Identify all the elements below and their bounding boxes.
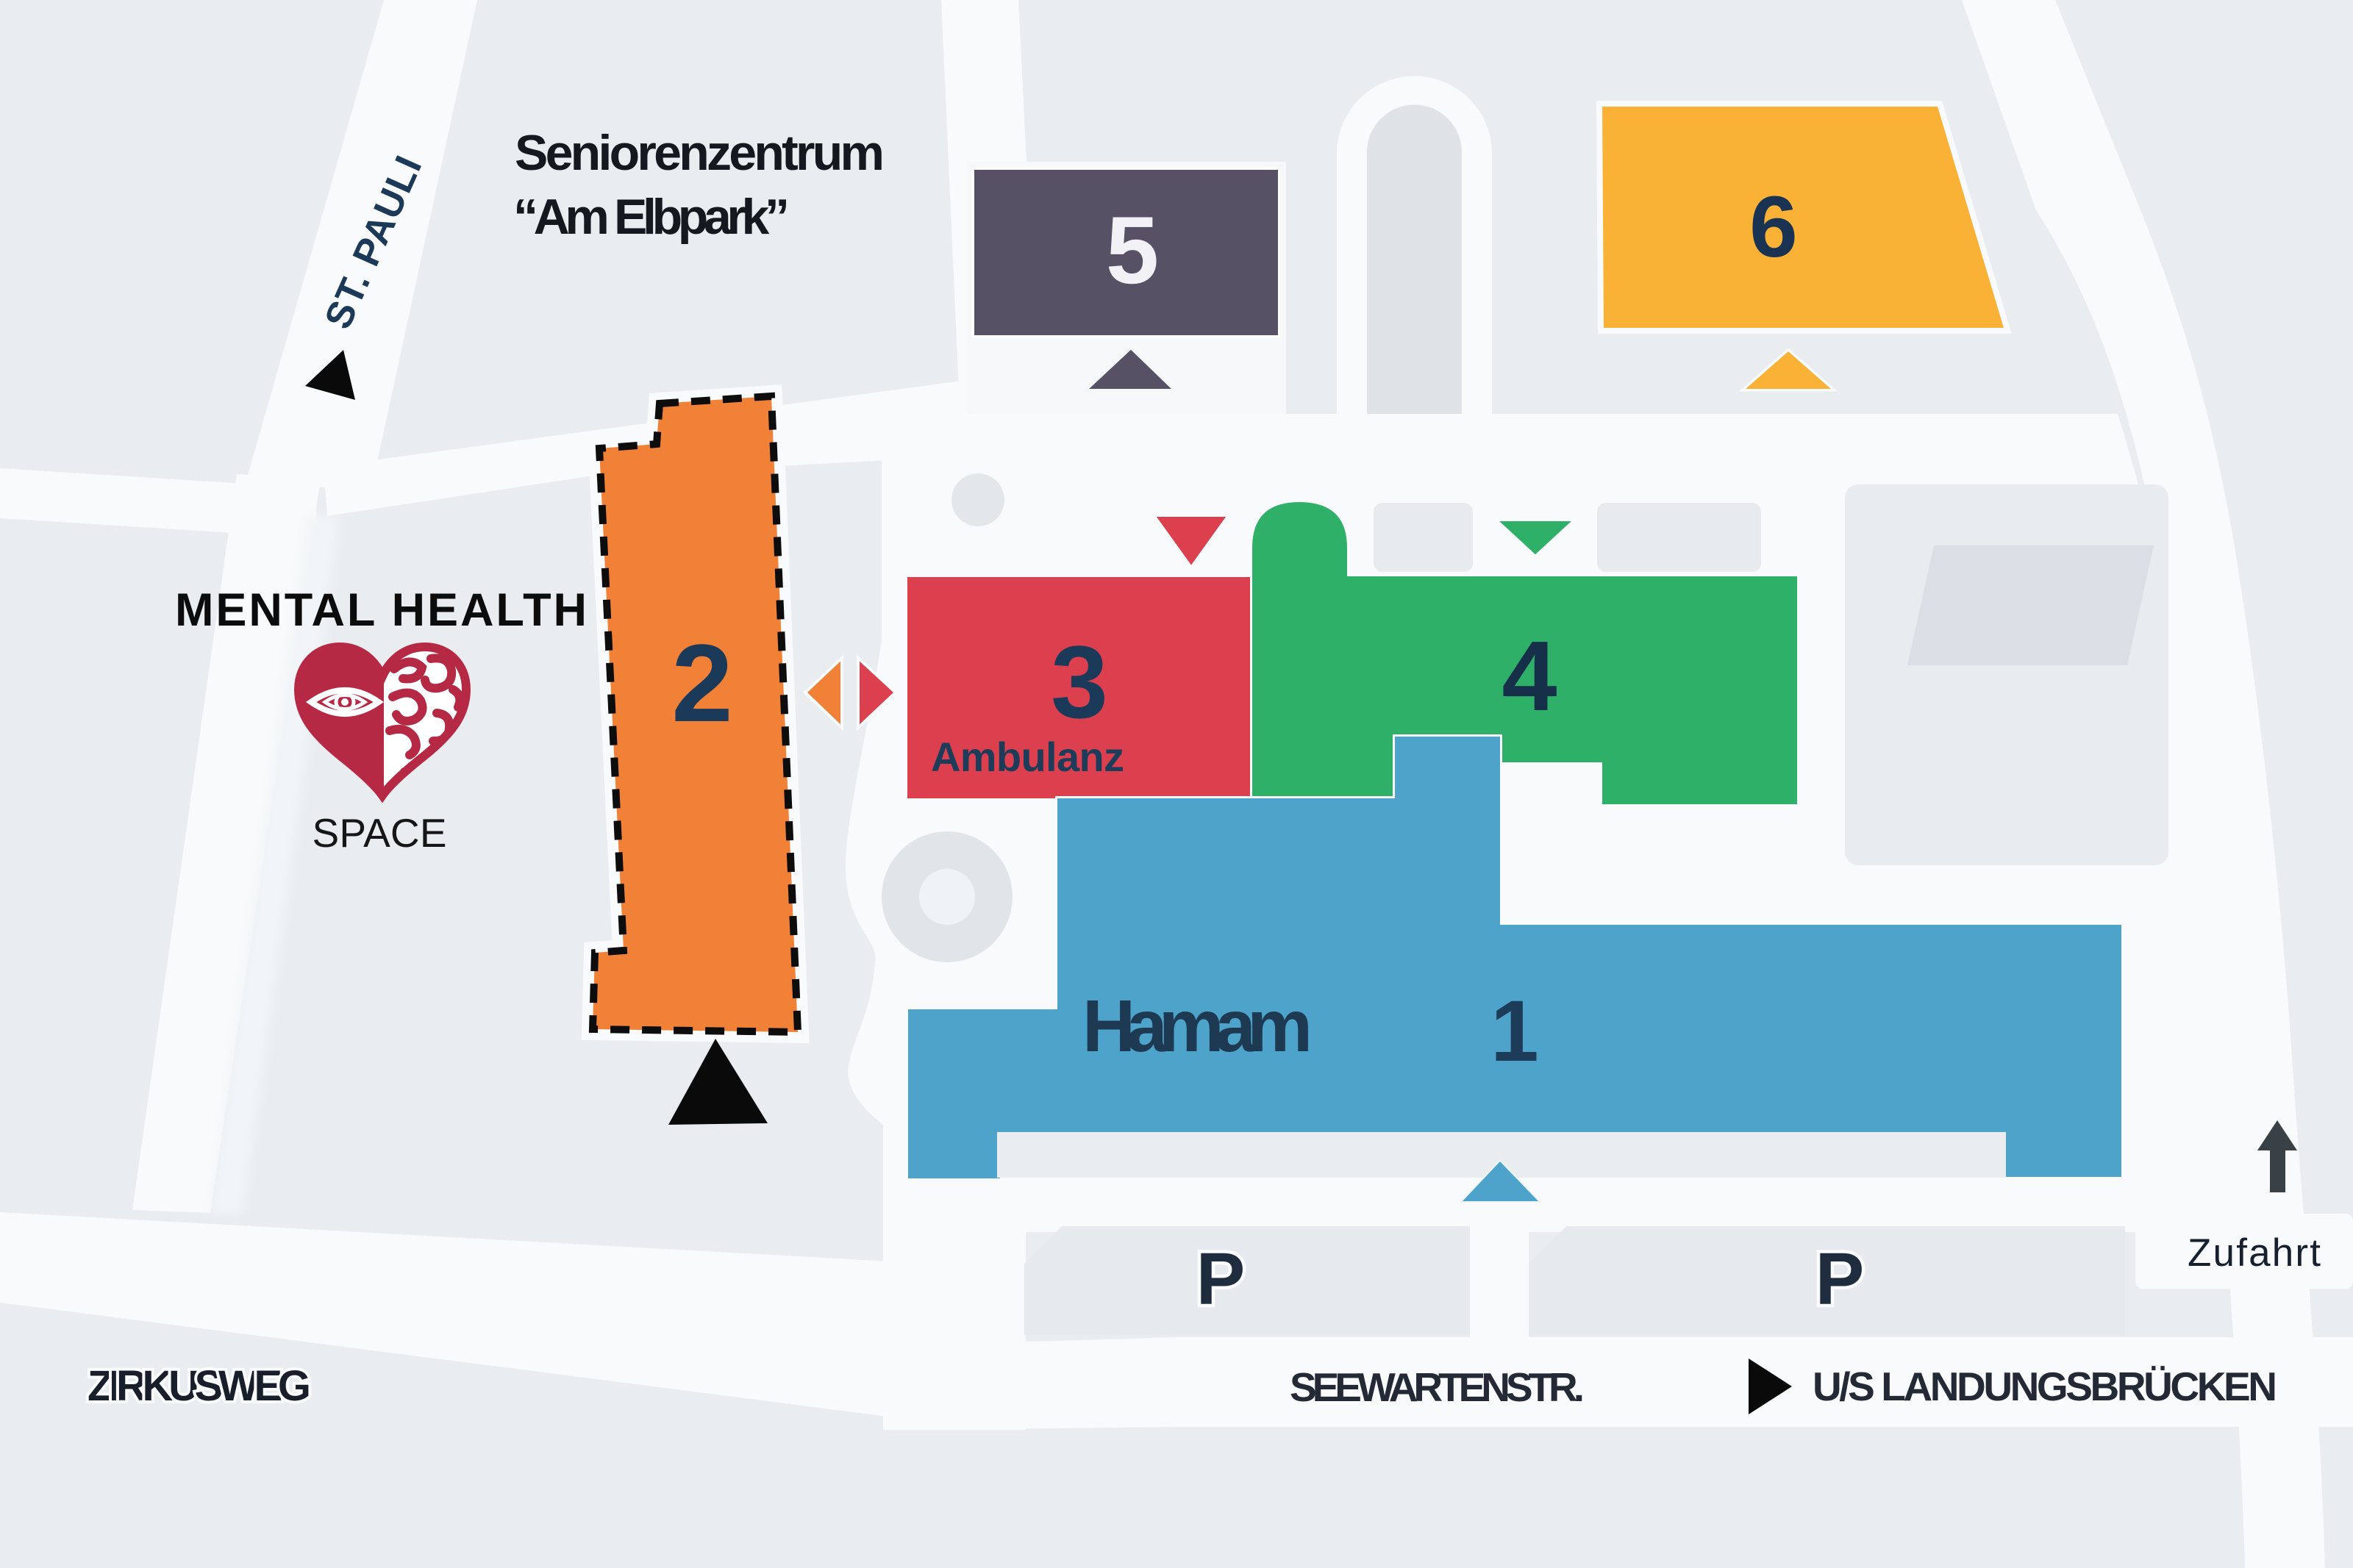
svg-text:4: 4 bbox=[1502, 620, 1557, 731]
svg-text:Ambulanz: Ambulanz bbox=[931, 734, 1124, 780]
svg-text:MENTAL HEALTH: MENTAL HEALTH bbox=[175, 584, 588, 636]
svg-text:P: P bbox=[1815, 1238, 1865, 1320]
svg-text:Hamam: Hamam bbox=[1082, 985, 1313, 1067]
svg-text:2: 2 bbox=[671, 621, 732, 745]
svg-text:6: 6 bbox=[1749, 179, 1798, 276]
svg-text:Seniorenzentrum: Seniorenzentrum bbox=[515, 125, 885, 181]
svg-text:SPACE: SPACE bbox=[313, 810, 453, 856]
svg-text:P: P bbox=[1196, 1238, 1246, 1320]
svg-text:1: 1 bbox=[1490, 983, 1539, 1080]
svg-text:“Am Elbpark”: “Am Elbpark” bbox=[513, 189, 790, 245]
svg-text:ZIRKUSWEG: ZIRKUSWEG bbox=[88, 1362, 311, 1410]
svg-text:5: 5 bbox=[1106, 196, 1159, 304]
svg-text:U/S LANDUNGSBRÜCKEN: U/S LANDUNGSBRÜCKEN bbox=[1813, 1364, 2277, 1409]
svg-text:Zufahrt: Zufahrt bbox=[2188, 1231, 2321, 1275]
svg-text:3: 3 bbox=[1051, 624, 1108, 740]
svg-text:SEEWARTENSTR.: SEEWARTENSTR. bbox=[1290, 1364, 1585, 1410]
